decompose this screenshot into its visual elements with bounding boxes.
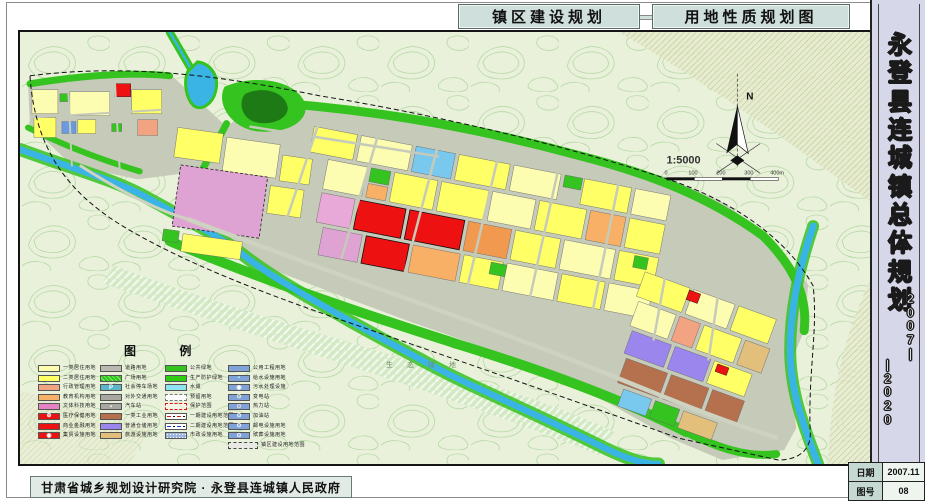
vertical-title-char: 县 [888,89,912,117]
sheet-number-value: 08 [883,482,924,500]
vertical-title-char: 0 [907,306,914,320]
vertical-title-char: 规 [888,259,912,287]
credit-bar: 甘肃省城乡规划设计研究院 · 永登县连城镇人民政府 [30,476,352,498]
vertical-title-char: 总 [888,202,912,230]
svg-text:200: 200 [716,170,725,176]
sheet-number-label: 图号 [849,482,883,500]
vertical-title-char: 0 [884,413,891,427]
plan-years-start: 2007| [907,292,914,360]
eco-green-label: 生 态 绿 地 [386,360,462,370]
reservoir [186,62,217,108]
vertical-title-char: 2 [884,399,891,413]
vertical-title-char: 2 [884,372,891,386]
plan-sheet: { "header": { "title_left": "镇区建设规划", "t… [0,0,925,500]
date-value: 2007.11 [883,463,924,481]
vertical-title-char: 2 [907,292,914,306]
svg-text:N: N [746,92,753,103]
plan-years: 2007| |2020 [880,292,920,452]
vertical-title-char: | [909,347,913,361]
vertical-title-char: 登 [888,60,912,88]
land-use-map: N 1:5000 0 100 200 300 400m [20,32,870,464]
svg-text:100: 100 [688,170,697,176]
vertical-title-char: | [886,358,890,372]
header-title-right: 用地性质规划图 [652,4,850,29]
table-row: 日期 2007.11 [849,463,924,482]
vertical-title-char: 体 [888,230,912,258]
map-canvas: N 1:5000 0 100 200 300 400m 图 例 一类居住用地二类… [18,30,872,466]
vertical-title-char: 城 [888,145,912,173]
table-row: 图号 08 [849,482,924,500]
vertical-title-char: 0 [907,319,914,333]
title-block-table: 日期 2007.11 图号 08 [848,462,925,501]
svg-text:1:5000: 1:5000 [666,154,700,166]
svg-text:0: 0 [664,170,667,176]
title-sidebar: 永登县连城镇总体规划 2007| |2020 [870,0,925,500]
plan-years-end: |2020 [884,358,891,426]
svg-text:400m: 400m [770,170,784,176]
vertical-title-char: 镇 [888,174,912,202]
vertical-title-char: 7 [907,333,914,347]
vertical-title-char: 0 [884,385,891,399]
vertical-title-char: 永 [888,32,912,60]
plan-title-vertical: 永登县连城镇总体规划 [882,32,918,315]
svg-text:300: 300 [744,170,753,176]
header-title-left: 镇区建设规划 [458,4,640,29]
date-label: 日期 [849,463,883,481]
vertical-title-char: 连 [888,117,912,145]
